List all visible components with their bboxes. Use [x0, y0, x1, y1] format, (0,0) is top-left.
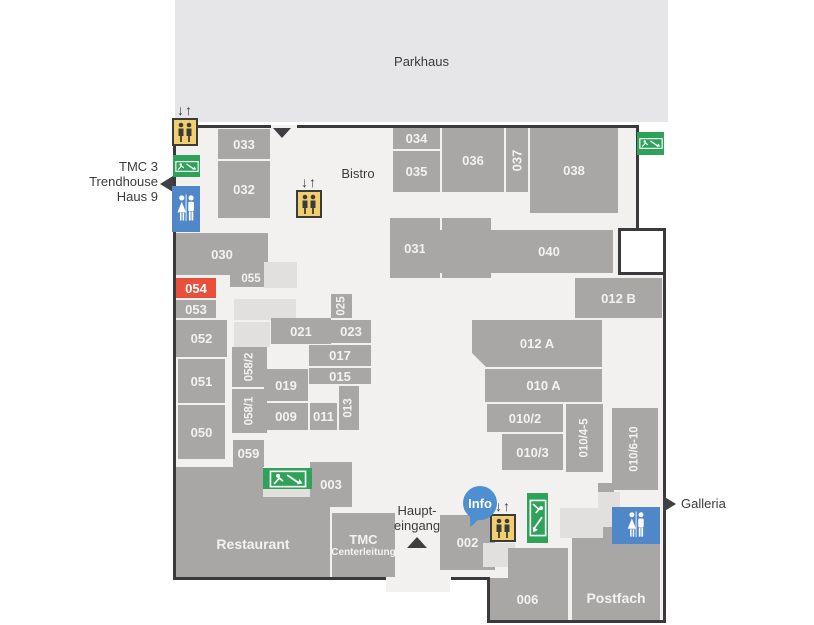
room-038[interactable]: 038 — [530, 128, 618, 213]
room-017[interactable]: 017 — [309, 345, 371, 366]
room-051[interactable]: 051 — [178, 359, 225, 403]
room-059[interactable]: 059 — [233, 440, 264, 467]
boundary-notch — [618, 228, 666, 275]
restaurant-label: Restaurant — [176, 536, 330, 552]
room-054-highlighted[interactable]: 054 — [176, 278, 216, 298]
room-058-1[interactable]: 058/1 — [232, 389, 267, 433]
room-015[interactable]: 015 — [309, 368, 371, 384]
room-010-6-10[interactable]: 010/6-10 — [612, 408, 658, 490]
room-unlabeled — [263, 489, 312, 497]
elevator-icon: ↓↑ — [172, 103, 198, 146]
parkhaus-area: Parkhaus — [175, 0, 668, 122]
wall-segment — [297, 125, 639, 128]
room-050[interactable]: 050 — [178, 405, 225, 459]
wc-icon — [612, 507, 660, 544]
room-032[interactable]: 032 — [218, 161, 270, 218]
room-010-2[interactable]: 010/2 — [487, 404, 563, 432]
room-unlabeled — [234, 299, 296, 320]
tmc3-exit-label: TMC 3 Trendhouse Haus 9 — [58, 159, 158, 204]
room-unlabeled — [264, 262, 297, 288]
room-006[interactable]: 006 — [487, 578, 568, 620]
elevator-arrows: ↓↑ — [172, 103, 198, 118]
room-023[interactable]: 023 — [331, 320, 371, 343]
tmc-centerleitung-area[interactable]: TMC Centerleitung — [332, 513, 395, 577]
elevator-box — [296, 190, 322, 218]
info-label: Info — [468, 496, 492, 511]
wall-segment — [663, 272, 666, 623]
wall-segment — [487, 620, 666, 623]
room-unlabeled — [560, 508, 603, 538]
tmc-label: TMC — [349, 532, 377, 547]
room-011[interactable]: 011 — [310, 403, 337, 430]
floorplan-canvas: Parkhaus 033 032 030 055 054 053 052 051… — [0, 0, 814, 625]
elevator-icon: ↓↑ — [296, 175, 322, 218]
wall-segment — [175, 577, 386, 580]
room-009[interactable]: 009 — [264, 403, 308, 430]
room-003[interactable]: 003 — [310, 462, 352, 507]
room-053[interactable]: 053 — [176, 300, 216, 318]
elevator-box — [172, 118, 198, 146]
elevator-arrows: ↓↑ — [296, 175, 322, 190]
wc-icon — [172, 186, 200, 232]
elevator-box — [490, 514, 516, 542]
wall-segment — [451, 577, 490, 580]
emergency-exit-icon — [263, 468, 312, 489]
room-034[interactable]: 034 — [393, 128, 440, 149]
room-012b[interactable]: 012 B — [575, 278, 662, 318]
wall-segment — [487, 577, 490, 623]
emergency-exit-icon — [173, 155, 200, 177]
info-marker[interactable]: Info — [463, 486, 497, 520]
emergency-exit-icon — [637, 132, 664, 155]
room-013[interactable]: 013 — [339, 386, 359, 430]
room-037[interactable]: 037 — [506, 128, 528, 192]
room-unlabeled — [598, 483, 614, 492]
room-030[interactable]: 030 — [176, 233, 268, 275]
room-021[interactable]: 021 — [271, 318, 331, 344]
bistro-label: Bistro — [330, 166, 386, 181]
restaurant-area[interactable] — [176, 467, 263, 577]
parkhaus-label: Parkhaus — [394, 54, 449, 69]
room-033[interactable]: 033 — [218, 129, 270, 159]
room-040[interactable]: 040 — [425, 230, 613, 273]
room-unlabeled — [234, 322, 270, 347]
room-019[interactable]: 019 — [264, 369, 308, 401]
emergency-exit-icon — [527, 493, 548, 543]
room-036[interactable]: 036 — [442, 128, 504, 192]
room-012a[interactable]: 012 A — [472, 320, 602, 367]
haupteingang-label: Haupt- eingang — [392, 503, 442, 533]
room-052[interactable]: 052 — [176, 320, 227, 357]
parkhaus-entrance-arrow — [273, 128, 291, 138]
room-035[interactable]: 035 — [393, 151, 440, 192]
room-010a[interactable]: 010 A — [485, 369, 602, 402]
room-010-3[interactable]: 010/3 — [502, 434, 563, 470]
room-006[interactable] — [508, 548, 568, 580]
room-058-2[interactable]: 058/2 — [232, 347, 267, 387]
room-025[interactable]: 025 — [331, 294, 352, 318]
galleria-exit-arrow — [663, 496, 676, 512]
galleria-label: Galleria — [681, 496, 726, 511]
haupteingang-arrow — [407, 537, 427, 548]
room-010-4-5[interactable]: 010/4-5 — [566, 404, 603, 472]
centerleitung-label: Centerleitung — [331, 547, 395, 558]
